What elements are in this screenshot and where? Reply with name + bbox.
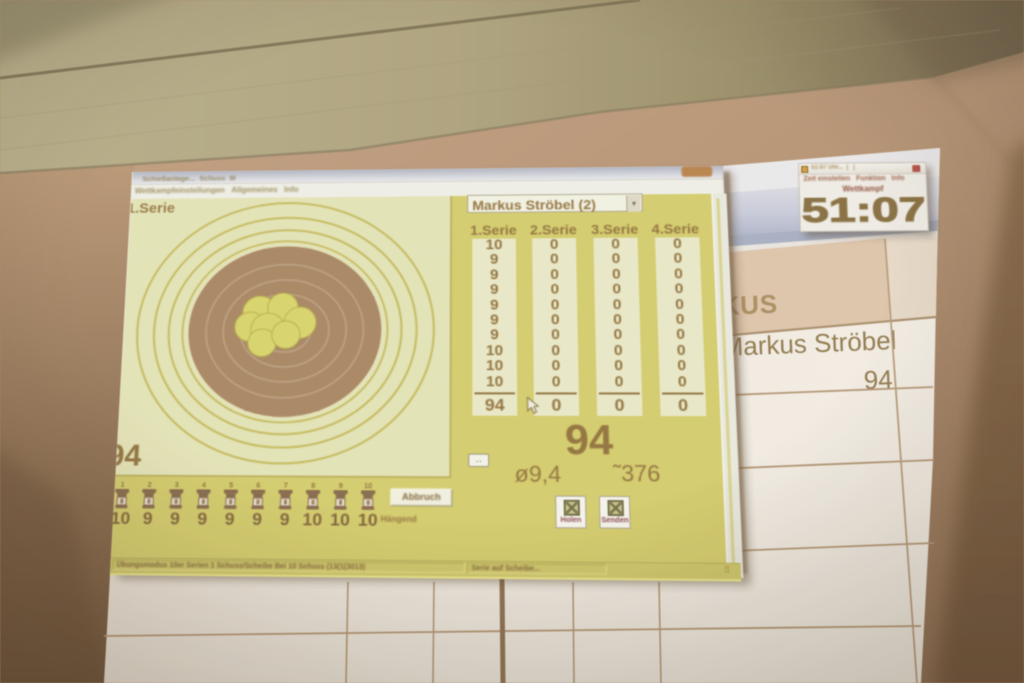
svg-text:2: 2 [147, 482, 152, 490]
svg-text:5: 5 [229, 482, 234, 490]
svg-text:8: 8 [311, 482, 316, 490]
svg-text:9: 9 [339, 483, 344, 491]
svg-text:6: 6 [256, 482, 261, 490]
svg-text:94: 94 [863, 364, 893, 395]
svg-text:10: 10 [364, 483, 373, 491]
svg-text:7: 7 [284, 482, 289, 490]
svg-text:3: 3 [174, 482, 179, 490]
svg-text:1: 1 [120, 481, 125, 489]
svg-text:4: 4 [202, 482, 207, 490]
